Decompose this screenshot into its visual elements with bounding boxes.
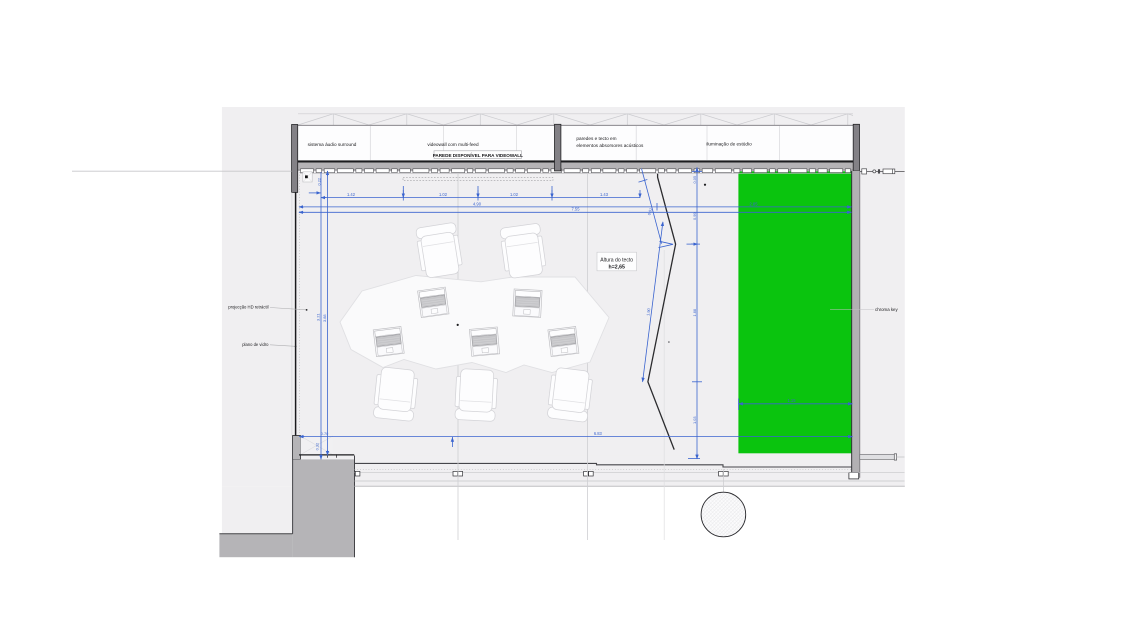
svg-text:elementos absorsores acústicos: elementos absorsores acústicos xyxy=(576,143,644,148)
svg-text:videowall com multi-feed: videowall com multi-feed xyxy=(427,142,479,147)
svg-text:0.05: 0.05 xyxy=(692,176,697,184)
svg-text:plano de vidro: plano de vidro xyxy=(242,342,269,347)
svg-text:h=2,65: h=2,65 xyxy=(609,264,625,270)
svg-text:1.90: 1.90 xyxy=(645,307,651,316)
svg-text:3.88: 3.88 xyxy=(322,314,327,322)
svg-text:1.88: 1.88 xyxy=(692,309,697,317)
svg-text:PAREDE DISPONÍVEL PARA VIDEOWA: PAREDE DISPONÍVEL PARA VIDEOWALL xyxy=(433,151,523,158)
svg-text:1.02: 1.02 xyxy=(510,192,519,197)
svg-text:1.43: 1.43 xyxy=(600,192,609,197)
svg-text:1.03: 1.03 xyxy=(692,416,697,424)
svg-text:paredes e tecto em: paredes e tecto em xyxy=(576,136,616,141)
svg-text:1.02: 1.02 xyxy=(439,192,448,197)
svg-text:sistema áudio surround: sistema áudio surround xyxy=(308,142,357,147)
svg-text:1.15: 1.15 xyxy=(788,398,797,403)
svg-text:4.90: 4.90 xyxy=(473,201,482,206)
svg-text:1.42: 1.42 xyxy=(347,192,356,197)
svg-text:3.21: 3.21 xyxy=(316,313,321,321)
svg-text:6.83: 6.83 xyxy=(594,431,603,436)
svg-text:2.85: 2.85 xyxy=(750,201,759,206)
svg-text:chroma key: chroma key xyxy=(875,307,898,312)
svg-text:projecção HD retráctil: projecção HD retráctil xyxy=(228,305,268,310)
svg-text:7.55: 7.55 xyxy=(572,207,581,212)
svg-text:0.99: 0.99 xyxy=(692,212,697,220)
svg-text:0.32: 0.32 xyxy=(315,443,320,451)
svg-text:iluminação de estúdio: iluminação de estúdio xyxy=(706,142,752,147)
svg-text:Altura do tecto: Altura do tecto xyxy=(600,257,633,263)
